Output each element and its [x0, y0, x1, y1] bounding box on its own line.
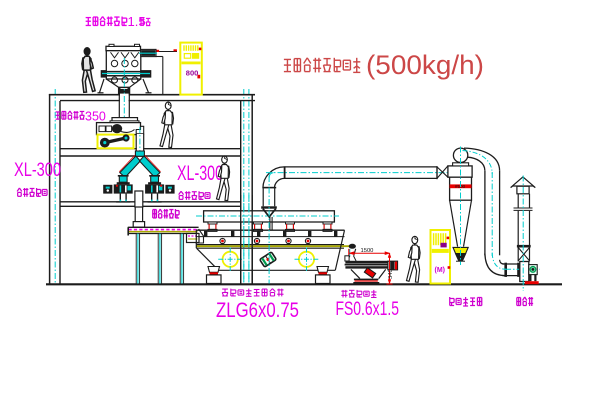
svg-text:(M): (M) [435, 267, 446, 274]
svg-text:ZLG6x0.75: ZLG6x0.75 [216, 299, 299, 322]
svg-text:FS0.6x1.5: FS0.6x1.5 [336, 299, 400, 320]
svg-text:340: 340 [388, 269, 394, 279]
svg-text:XL-300: XL-300 [177, 162, 223, 185]
svg-text:350: 350 [85, 109, 106, 123]
svg-text:(500kg/h): (500kg/h) [366, 50, 484, 80]
svg-text:XL-300: XL-300 [14, 160, 61, 181]
svg-text:1500: 1500 [361, 248, 374, 254]
svg-text:800: 800 [186, 68, 199, 77]
